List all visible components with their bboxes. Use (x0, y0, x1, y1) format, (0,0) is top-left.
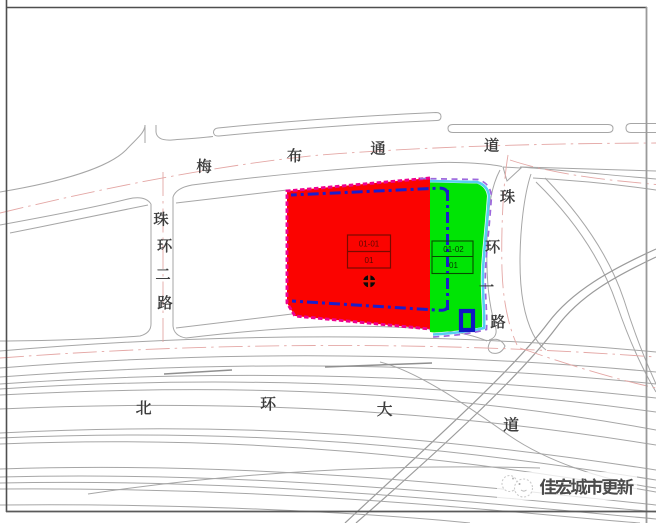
svg-text:01: 01 (365, 256, 374, 265)
svg-text:01-01: 01-01 (359, 240, 380, 249)
svg-text:01-02: 01-02 (443, 245, 464, 254)
svg-text:01: 01 (449, 261, 458, 270)
